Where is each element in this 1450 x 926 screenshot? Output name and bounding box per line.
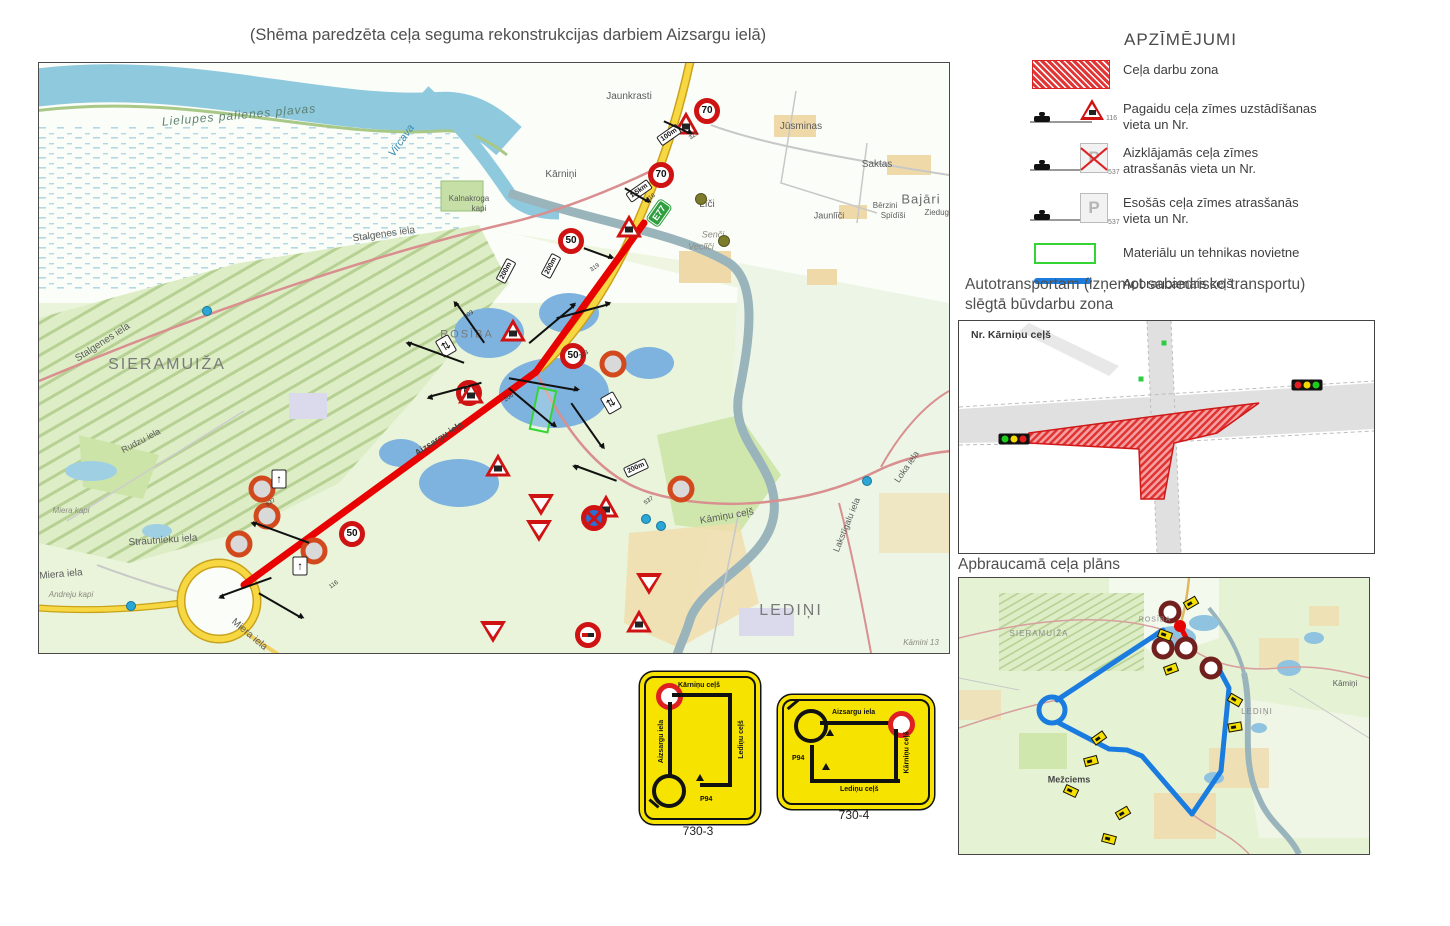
legend-label: Pagaidu ceļa zīmes uzstādīšanas [1123,101,1317,117]
direction-arrow-icon [826,729,834,736]
map-label: Lakstīgalu iela [832,497,862,554]
closed-zone-map: Nr. Kārniņu ceļš [958,320,1375,554]
legend-label: Aizklājamās ceļa zīmes [1123,145,1258,161]
map-label: Saktas [862,160,893,170]
detour-map: SIERAMUIŽAROSĪBAMežciemsLEDIŅIKāmiņi [958,577,1370,855]
bus-stop-icon [202,306,212,316]
street-label: Kārniņu ceļš [678,682,720,689]
street-label: Lediņu ceļš [840,786,879,793]
legend-label: Materiālu un tehnikas novietne [1123,245,1299,260]
route-line [810,779,900,783]
closure-point [1174,620,1186,632]
poi-icon [718,235,730,247]
map-label: Stalgenes iela [352,226,416,245]
work-zone-swatch-icon [1032,60,1110,89]
existing-sign-location [226,531,253,558]
distance-plate: 200m [623,458,649,478]
speed-limit-sign: 70 [694,98,720,124]
map-label: LEDIŅI [759,603,823,619]
map-label: Spīdīši [881,212,905,220]
map-label: Ziedugas [925,209,950,217]
legend-title: APZĪMĒJUMI [1124,30,1428,50]
legend-label: Ceļa darbu zona [1123,62,1218,77]
map-label: Andreju kapi [49,591,93,599]
sign-base-icon [1034,116,1050,122]
route-line [810,745,814,783]
yield-sign [636,573,662,595]
map-label: 116 [328,580,339,590]
yield-sign [528,494,554,516]
detour-mini-sign [1115,806,1132,821]
bus-stop-icon [641,514,651,524]
map-label: Jaunkrasti [606,92,652,102]
plate-caption: 730-3 [644,824,752,838]
leader-line [407,342,464,364]
legend-label: Esošās ceļa zīmes atrasšanās [1123,195,1299,211]
map-label: Kārniņi [545,170,576,180]
closed-zone-heading-line1: Autotransportam (izņemot sabiedrisko tra… [965,276,1305,294]
page-title: (Shēma paredzēta ceļa seguma rekonstrukc… [38,26,978,45]
map-label: 803 [463,310,475,321]
map-label: ROSĪBA [1139,617,1171,624]
route-line [668,702,672,778]
signal-dot [1162,341,1167,346]
roadworks-warning-sign [485,454,511,477]
route-line [894,729,898,781]
roadworks-triangle-icon [1080,99,1104,120]
street-label: Aizsargu iela [832,709,875,716]
road-closed-sign [1152,637,1175,660]
road-closed-sign [1175,637,1198,660]
legend-item-temporary-sign: 116 Pagaidu ceļa zīmes uzstādīšanas viet… [1028,99,1428,133]
map-label: Kāmiņu ceļš [699,507,754,526]
existing-sign-location [600,351,627,378]
detour-map-markers: SIERAMUIŽAROSĪBAMežciemsLEDIŅIKāmiņi [959,578,1369,854]
sign-base-icon [1034,164,1050,170]
street-label: Aizsargu iela [658,720,665,763]
map-label: Miera iela [39,568,83,582]
closed-zone-markers [959,321,1374,553]
legend-label: vieta un Nr. [1123,211,1299,227]
detour-mini-sign [1227,693,1244,708]
main-map-markers: Lielupes palienes pļavasVircavaStalgenes… [39,63,949,653]
materials-area-icon [1034,243,1096,264]
legend-item-materials-area: Materiālu un tehnikas novietne [1028,243,1428,264]
legend-item-work-zone: Ceļa darbu zona [1028,60,1428,89]
map-label: Miera kapi [53,507,90,515]
distance-plate: 200m [496,258,517,284]
map-label: Miera iela [229,617,269,653]
map-label: Veclīči [688,243,714,252]
map-label: Jūsminas [780,122,822,132]
map-label: Kalnakroga [449,195,489,203]
map-label: Loka iela [893,450,921,485]
street-label: Kārniņu ceļš [904,731,911,773]
sign-number: 537 [1108,219,1120,226]
map-label: SIERAMUIŽA [108,357,226,373]
map-label: Bajāri [901,193,940,206]
leader-line [529,304,576,344]
two-way-traffic-plate: ⇅ [600,391,622,415]
sign-number: 116 [1106,115,1117,122]
no-stopping-sign [581,505,607,531]
route-line [820,721,894,725]
map-label: 116 [645,193,656,203]
roadworks-warning-sign [626,610,652,633]
road-closed-sign [1200,657,1223,680]
covered-sign-icon: P [1080,143,1108,173]
detour-mini-sign [1227,721,1242,732]
street-label: Lediņu ceļš [738,720,745,759]
map-label: Vircava [387,123,417,159]
speed-limit-sign: 50 [339,521,365,547]
map-label: Kāmini 13 [903,639,939,647]
leader-line [584,247,613,259]
route-line [728,693,732,787]
map-label: 206 [503,393,515,404]
detour-mini-sign [1101,833,1117,845]
leader-line [252,522,309,544]
route-number-label: P94 [700,796,712,803]
bus-stop-icon [656,521,666,531]
route-line [700,783,732,787]
two-way-traffic-plate: ↑ [272,470,287,489]
roadworks-warning-sign [616,215,642,238]
map-label: Kāmiņi [1333,680,1357,688]
map-label: 537 [643,496,655,507]
detour-mini-sign [1091,730,1108,745]
map-label: kapi [472,205,487,213]
map-label: Lielupes palienes pļavas [161,102,316,127]
direction-arrow-icon [822,763,830,770]
map-label: Strautnieku iela [128,534,197,549]
existing-sign-icon: P [1080,193,1108,223]
speed-limit-sign: 50 [558,228,584,254]
road-closed-icon [888,711,915,738]
roundabout-icon [794,709,828,743]
signal-dot [1139,377,1144,382]
direction-arrow-icon [696,774,704,781]
detour-plate-730-3: Kārniņu ceļš Aizsargu iela Lediņu ceļš P… [644,676,756,820]
detour-plate-730-4: Aizsargu iela Kārniņu ceļš Lediņu ceļš P… [782,699,930,805]
map-label: Bērzini [873,202,897,210]
detour-mini-sign [1163,662,1179,675]
leader-line [574,465,617,482]
map-label: 319 [589,263,601,274]
plate-caption: 730-4 [782,808,926,822]
legend-label: atrasšanās vieta un Nr. [1123,161,1258,177]
legend-item-existing-sign: P 537 Esošās ceļa zīmes atrasšanās vieta… [1028,193,1428,233]
bus-stop-icon [862,476,872,486]
route-stub [787,699,800,710]
route-number-label: P94 [792,755,804,762]
poi-icon [695,193,707,205]
traffic-light-icon [999,434,1030,445]
closed-zone-heading-line2: slēgtā būvdarbu zona [965,296,1113,314]
sign-base-icon [1034,214,1050,220]
detour-heading: Apbraucamā ceļa plāns [958,556,1120,574]
legend: APZĪMĒJUMI Ceļa darbu zona 116 Pagaidu c… [1028,30,1428,292]
no-overtaking-sign [575,622,601,648]
roundabout-icon [652,774,686,808]
map-label: Aizsargu iela [413,420,464,458]
bus-stop-icon [126,601,136,611]
legend-item-covered-sign: P 537 Aizklājamās ceļa zīmes atrasšanās … [1028,143,1428,183]
distance-plate: 200m [541,253,562,279]
detour-mini-sign [1083,755,1099,767]
roadworks-warning-sign [500,319,526,342]
main-scheme-map: Lielupes palienes pļavasVircavaStalgenes… [38,62,950,654]
traffic-light-icon [1292,380,1323,391]
map-label: Jaunlīči [814,212,845,221]
map-label: SIERAMUIŽA [1010,630,1069,638]
sign-number: 537 [1108,169,1120,176]
route-line [672,693,732,697]
speed-limit-sign: 70 [648,162,674,188]
legend-label: vieta un Nr. [1123,117,1317,133]
leader-line [571,403,604,449]
existing-sign-location [668,476,695,503]
detour-mini-sign [1063,784,1079,798]
map-label: Rudzu iela [120,427,162,455]
leader-line [259,592,303,618]
detour-mini-sign [1183,596,1200,611]
yield-sign [480,621,506,643]
map-label: Mežciems [1048,776,1091,785]
two-way-traffic-plate: ↑ [293,557,308,576]
map-label: LEDIŅI [1241,708,1273,716]
yield-sign [526,520,552,542]
